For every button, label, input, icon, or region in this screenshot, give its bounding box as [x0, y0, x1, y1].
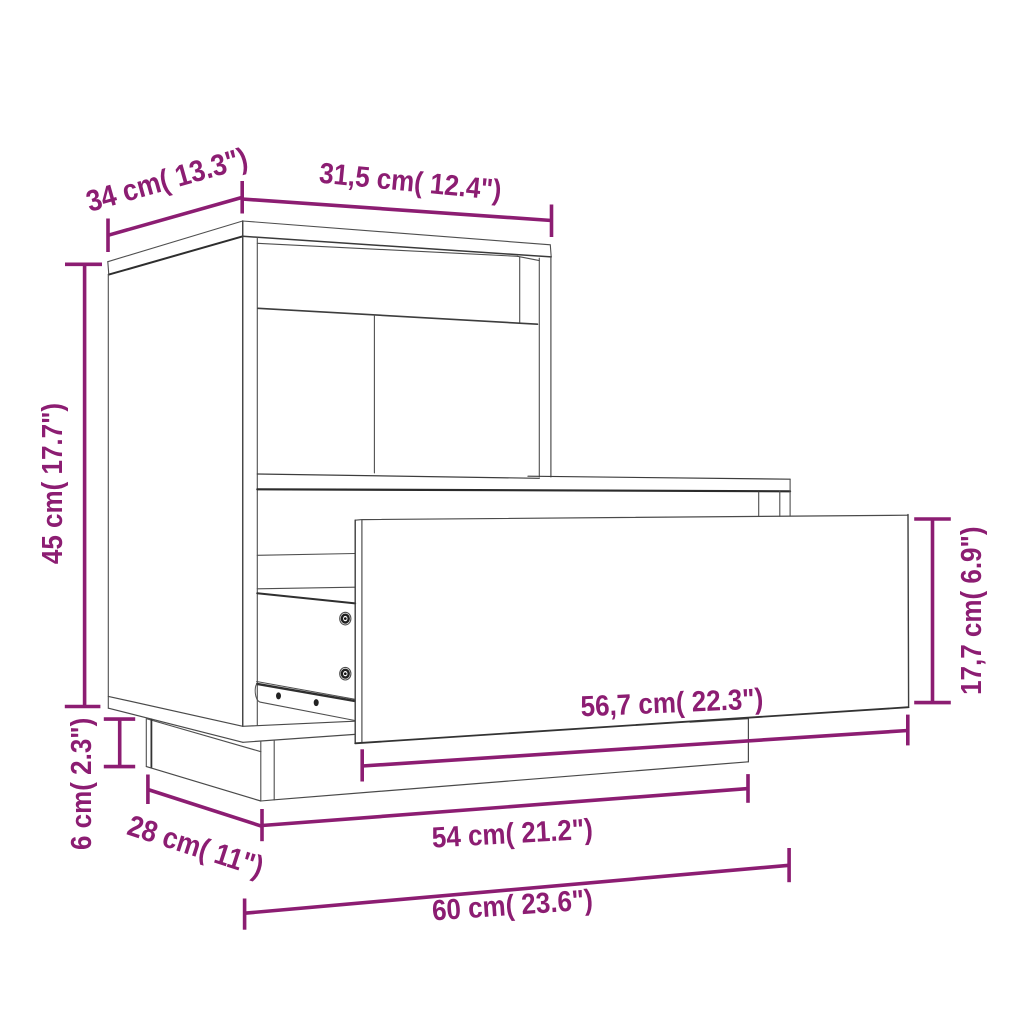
- svg-text:17,7 cm( 6.9"): 17,7 cm( 6.9"): [955, 526, 987, 694]
- svg-text:6 cm( 2.3"): 6 cm( 2.3"): [65, 718, 97, 850]
- svg-text:45 cm( 17.7"): 45 cm( 17.7"): [36, 403, 68, 564]
